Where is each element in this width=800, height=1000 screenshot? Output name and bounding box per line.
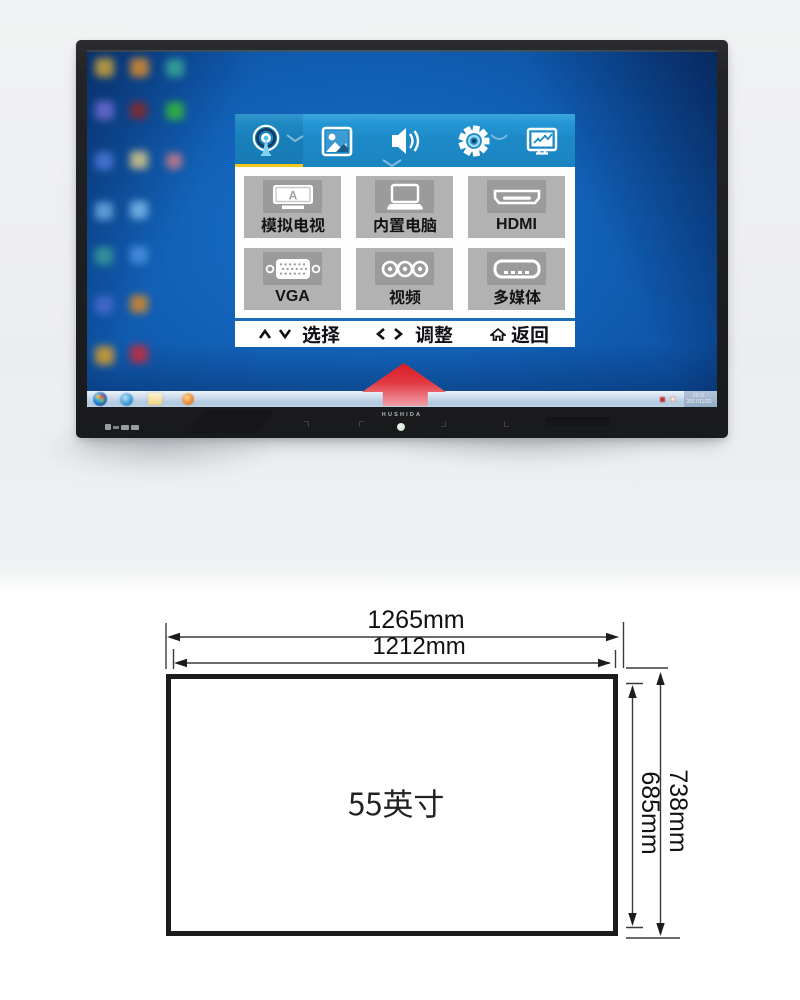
- svg-text:685mm: 685mm: [636, 771, 664, 854]
- svg-text:1265mm: 1265mm: [367, 606, 464, 634]
- svg-text:738mm: 738mm: [664, 769, 692, 852]
- svg-text:1212mm: 1212mm: [372, 633, 465, 660]
- svg-text:A: A: [288, 188, 297, 202]
